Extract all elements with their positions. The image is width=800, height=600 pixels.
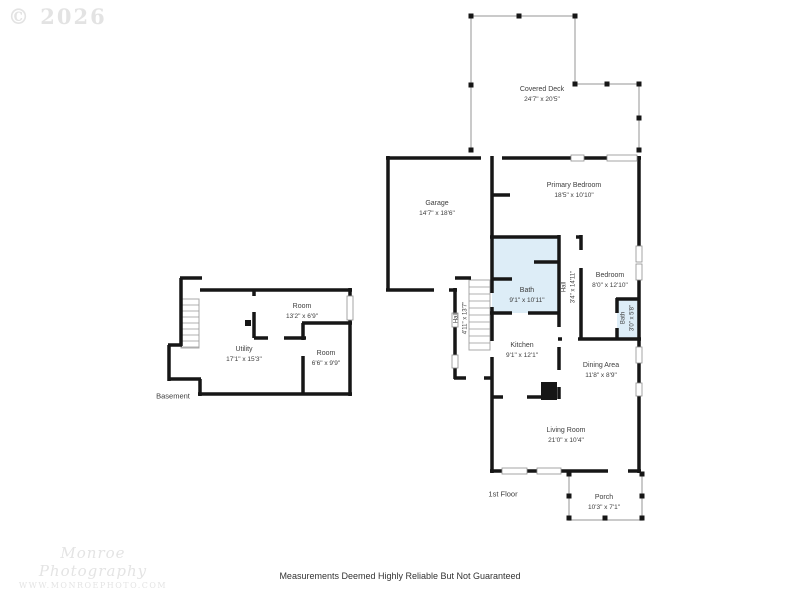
- room-dims: 4'11" x 13'7": [461, 302, 470, 334]
- covered-deck-outline: [469, 14, 642, 153]
- room-name: Utility: [226, 345, 262, 355]
- room-label-hall-stairs: Hall 4'11" x 13'7": [452, 302, 469, 334]
- room-dims: 13'2" x 6'9": [286, 312, 318, 321]
- room-name: Porch: [588, 493, 620, 503]
- room-dims: 8'0" x 12'10": [592, 281, 628, 290]
- room-label-bath-main: Bath 9'1" x 10'11": [509, 286, 544, 306]
- room-name: Covered Deck: [520, 85, 564, 95]
- measurements-disclaimer: Measurements Deemed Highly Reliable But …: [0, 571, 800, 581]
- room-name: Garage: [419, 199, 455, 209]
- room-dims: 21'0" x 10'4": [547, 436, 586, 445]
- room-label-basement-room-lower: Room 6'6" x 9'9": [312, 349, 340, 369]
- room-label-covered-deck: Covered Deck 24'7" x 20'5": [520, 85, 564, 105]
- room-label-porch: Porch 10'3" x 7'1": [588, 493, 620, 513]
- room-dims: 14'7" x 18'6": [419, 209, 455, 218]
- room-dims: 6'6" x 9'9": [312, 359, 340, 368]
- room-name: Bath: [509, 286, 544, 296]
- room-label-living-room: Living Room 21'0" x 10'4": [547, 426, 586, 446]
- room-name: Room: [312, 349, 340, 359]
- room-label-bedroom: Bedroom 8'0" x 12'10": [592, 271, 628, 291]
- floor-plan-drawing: [0, 0, 800, 600]
- room-dims: 3'4" x 14'11": [569, 271, 578, 303]
- copyright-watermark: © 2026: [8, 4, 107, 29]
- studio-url: WWW.MONROEPHOTO.COM: [18, 581, 168, 590]
- room-label-garage: Garage 14'7" x 18'6": [419, 199, 455, 219]
- room-dims: 9'1" x 12'1": [506, 351, 538, 360]
- room-name: Bath: [619, 305, 628, 331]
- room-dims: 9'1" x 10'11": [509, 296, 544, 305]
- deck-posts: [469, 14, 642, 153]
- first-floor-stairs: [469, 280, 490, 350]
- room-name: Dining Area: [583, 361, 619, 371]
- room-dims: 24'7" x 20'5": [520, 95, 564, 104]
- utility-post: [245, 320, 251, 326]
- room-dims: 11'8" x 8'9": [583, 371, 619, 380]
- room-label-hall-bedroom: Hall 3'4" x 14'11": [560, 271, 577, 303]
- room-name: Kitchen: [506, 341, 538, 351]
- room-dims: 18'5" x 10'10": [547, 191, 601, 200]
- studio-watermark: Monroe Photography WWW.MONROEPHOTO.COM: [18, 544, 168, 590]
- room-name: Living Room: [547, 426, 586, 436]
- room-label-primary-bedroom: Primary Bedroom 18'5" x 10'10": [547, 181, 601, 201]
- room-dims: 17'1" x 15'3": [226, 355, 262, 364]
- room-dims: 3'0" x 5'8": [628, 305, 637, 331]
- room-label-kitchen: Kitchen 9'1" x 12'1": [506, 341, 538, 361]
- room-label-utility: Utility 17'1" x 15'3": [226, 345, 262, 365]
- room-name: Bedroom: [592, 271, 628, 281]
- basement-caption: Basement: [156, 392, 190, 401]
- room-name: Primary Bedroom: [547, 181, 601, 191]
- room-dims: 10'3" x 7'1": [588, 503, 620, 512]
- basement-stairs: [181, 299, 199, 348]
- floor-plan-image: Covered Deck 24'7" x 20'5" Garage 14'7" …: [0, 0, 800, 600]
- room-name: Hall: [452, 302, 461, 334]
- room-name: Room: [286, 302, 318, 312]
- room-label-basement-room-upper: Room 13'2" x 6'9": [286, 302, 318, 322]
- room-label-bath-small: Bath 3'0" x 5'8": [619, 305, 636, 331]
- fireplace: [541, 382, 557, 400]
- room-label-dining-area: Dining Area 11'8" x 8'9": [583, 361, 619, 381]
- room-name: Hall: [560, 271, 569, 303]
- first-floor-caption: 1st Floor: [488, 490, 517, 499]
